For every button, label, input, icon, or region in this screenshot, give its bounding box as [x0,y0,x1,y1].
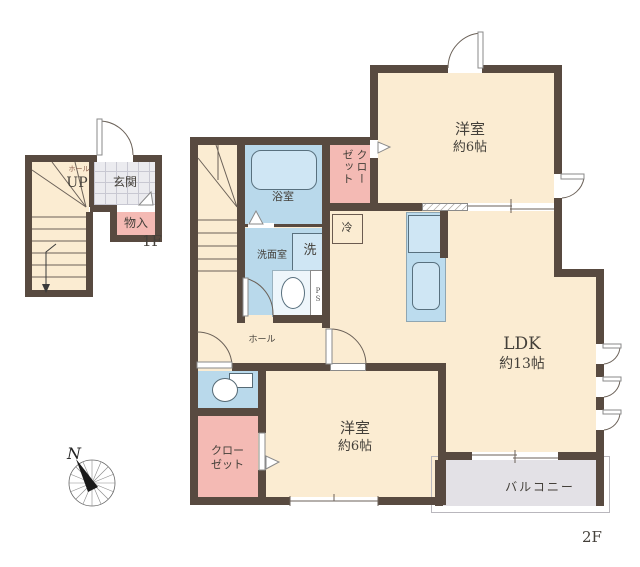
label-ldk-name: LDK [472,334,572,355]
label-washer: 洗 [293,243,327,259]
stairs-2f [198,145,237,271]
floorplan-canvas: ホール UP 玄関 物入 1F 浴室 洗面室 洗 クローゼット 冷 PS 洋室 … [0,0,640,567]
label-bath: 浴室 [255,190,311,204]
storage-door-mark [139,192,153,205]
balcony-slider-lines [472,450,558,463]
label-balcony: バルコニー [490,480,590,495]
label-bedroom-top-name: 洋室 [420,120,520,139]
label-ps: PS [312,280,322,310]
closet-upper-door-mark [378,142,390,153]
label-closet-lower-2: ゼット [197,458,258,472]
label-floor-1f: 1F [135,232,169,251]
label-bedroom-bottom-size: 約6帖 [305,439,405,455]
closet-lower-door [259,433,279,470]
top-slider-lines [468,199,554,213]
label-bedroom-top-size: 約6帖 [420,140,520,156]
label-bedroom-bottom-name: 洋室 [305,419,405,438]
label-hall-1f: ホール [62,165,96,174]
label-ldk-size: 約13帖 [472,356,572,374]
ldk-right-windows [603,344,621,430]
bath-door-mark [249,211,263,224]
compass [69,459,115,506]
label-storage-1f: 物入 [117,216,155,231]
washroom-door [243,278,273,316]
label-up: UP [60,175,94,193]
label-floor-2f: 2F [575,528,609,547]
bedroom-right-window [561,174,584,198]
label-closet-upper: クローゼット [334,149,368,193]
label-closet-lower-1: クロー [197,444,258,458]
bedroom-bottom-window-lines [290,494,378,506]
stairs-arrow [42,284,50,293]
bedroom-top-door [448,32,483,68]
label-entrance: 玄関 [100,175,150,190]
entrance-door [97,119,133,155]
label-fridge: 冷 [332,221,362,235]
hatch-window-fill [423,204,467,210]
toilet-door [197,332,232,368]
ldk-door [326,329,366,365]
label-hall-2f: ホール [240,335,284,346]
label-washroom: 洗面室 [246,250,298,263]
label-compass-n: N [62,444,86,464]
